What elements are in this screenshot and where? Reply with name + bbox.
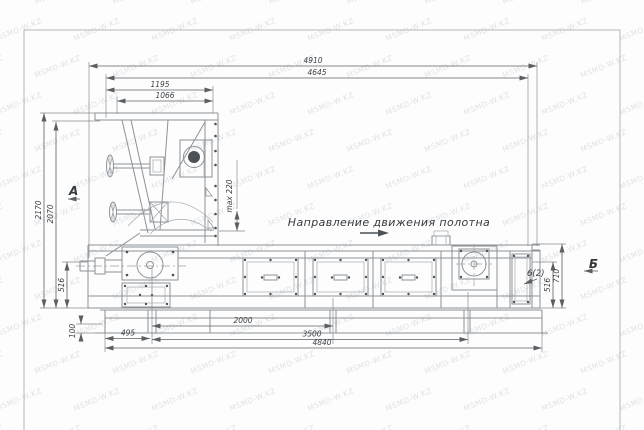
tail-pulley [432, 231, 497, 290]
access-panel-1 [243, 258, 298, 296]
bolt-column [214, 123, 217, 238]
handwheel-upper [107, 155, 165, 177]
dim-1066: 1066 [155, 91, 174, 100]
dim-516-right: 516 [543, 278, 552, 293]
direction-arrow-icon [360, 230, 389, 237]
dim-2000: 2000 [233, 316, 252, 325]
view-label-b: Б [589, 257, 598, 271]
dimension-texts: 4910 4645 1195 1066 2170 2070 516 100 ma… [34, 56, 561, 347]
access-panel-3 [381, 258, 436, 296]
dim-4840: 4840 [312, 338, 331, 347]
dim-2070: 2070 [46, 204, 55, 223]
dim-710: 710 [552, 269, 561, 284]
feeder-unit [95, 113, 218, 256]
dim-1195: 1195 [150, 80, 169, 89]
callout-6-2: 6(2) [527, 269, 544, 279]
dim-100: 100 [68, 324, 77, 339]
drive-motor [180, 140, 212, 177]
dim-495: 495 [121, 329, 136, 338]
direction-note: Направление движения полотна [288, 216, 490, 229]
dim-max-220: max 220 [225, 179, 234, 212]
dim-4910: 4910 [303, 56, 322, 65]
dim-516-left: 516 [57, 278, 66, 293]
access-panel-2 [313, 258, 368, 296]
dim-4645: 4645 [307, 68, 326, 77]
view-label-a: А [68, 184, 78, 198]
drive-end [76, 247, 186, 307]
drawing-sheet: MSMD-W.KZMSMD-W.KZMSMD-W.KZMSMD-W.KZMSMD… [0, 0, 644, 430]
technical-drawing-canvas: 4910 4645 1195 1066 2170 2070 516 100 ma… [0, 0, 644, 430]
dim-2170: 2170 [34, 200, 43, 219]
conveyor-body [76, 231, 548, 333]
handwheel-lower [110, 202, 169, 222]
annotations: Направление движения полотна А Б 6(2) [68, 184, 598, 284]
